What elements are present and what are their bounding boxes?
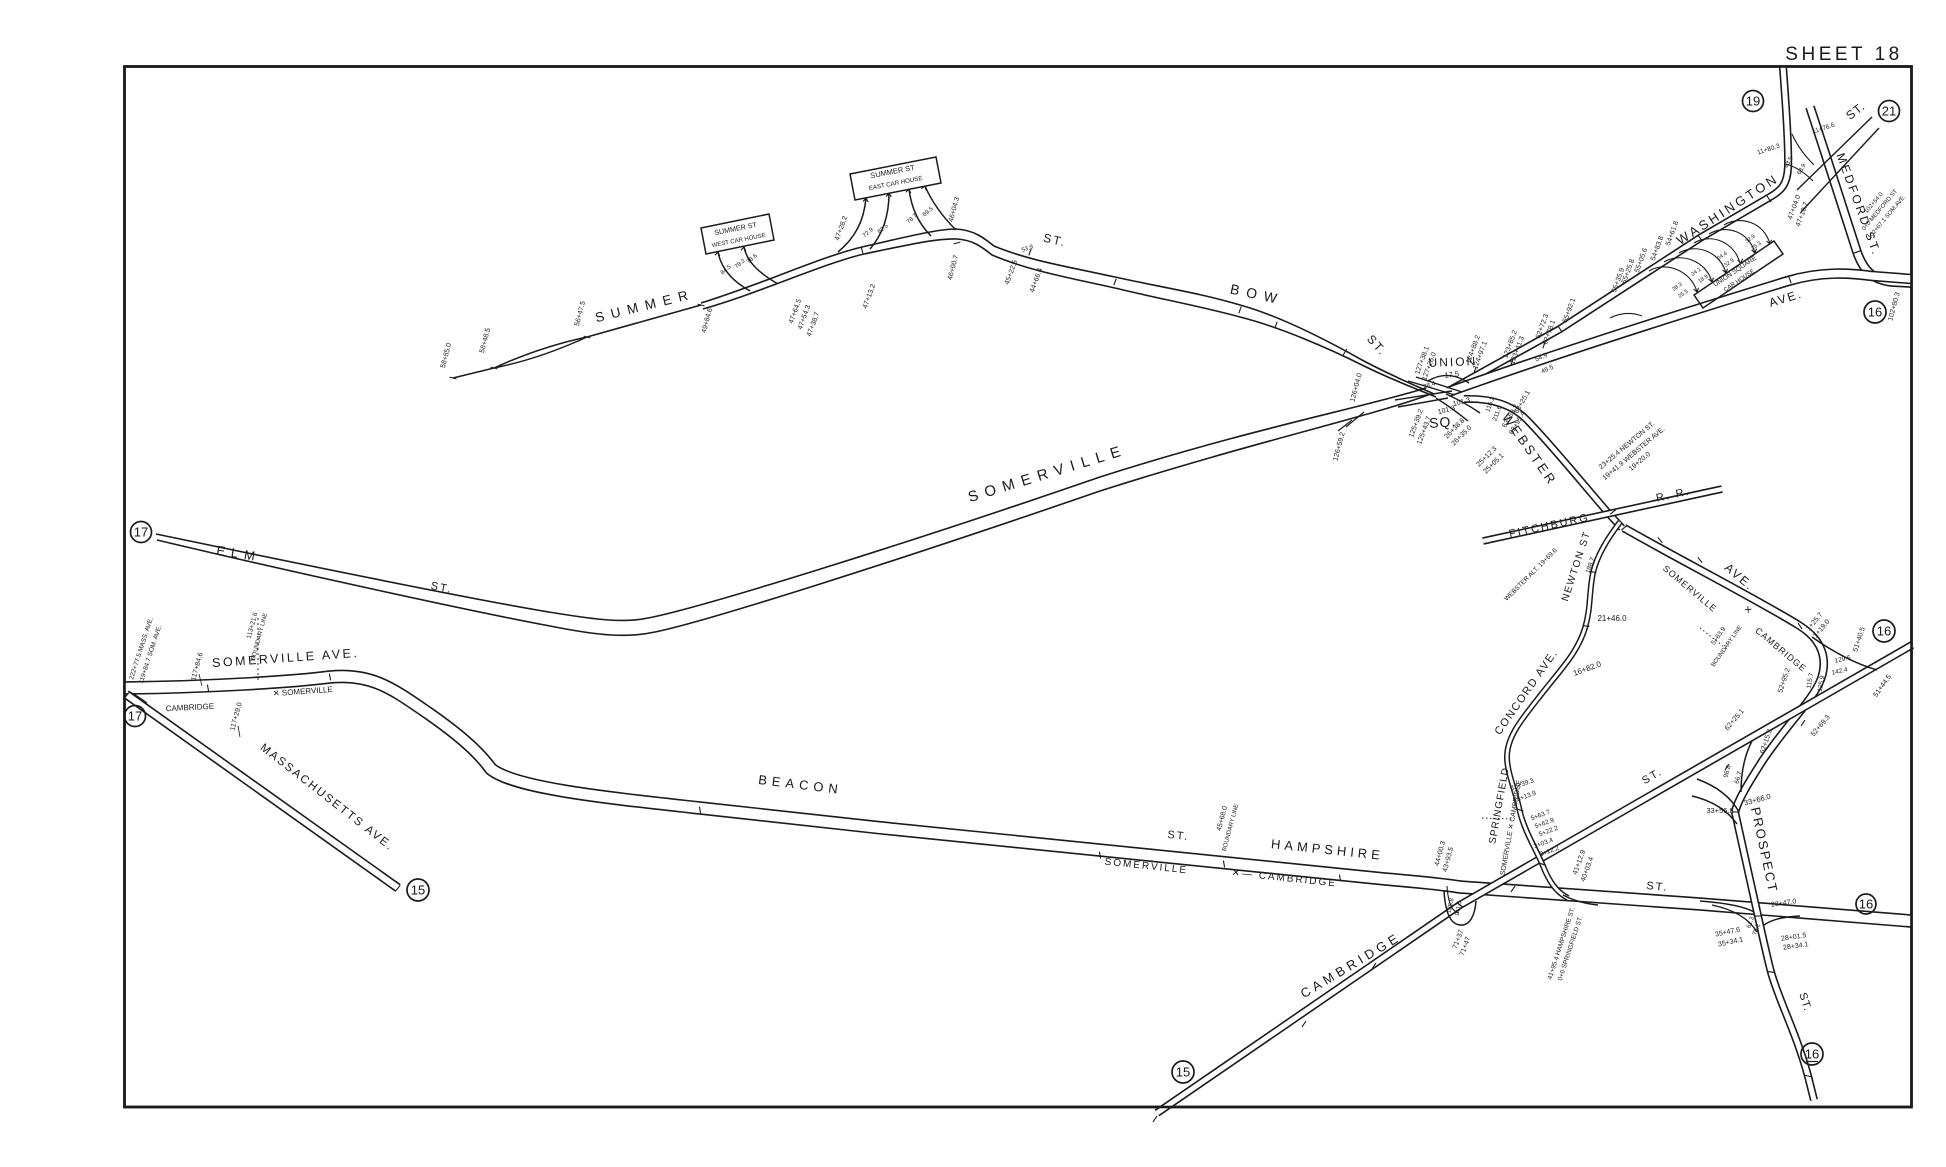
svg-text:21+46.0: 21+46.0 [1597,614,1627,623]
svg-text:17.5: 17.5 [1444,369,1459,379]
svg-text:21: 21 [1882,104,1896,119]
svg-text:15: 15 [411,883,425,898]
svg-text:16: 16 [1859,897,1873,912]
svg-text:16: 16 [1868,305,1882,320]
svg-text:19: 19 [1746,94,1760,109]
svg-text:33+56.8: 33+56.8 [1706,806,1733,815]
svg-text:ST.: ST. [1646,880,1669,894]
svg-text:15: 15 [1176,1065,1190,1080]
svg-text:17: 17 [128,709,142,724]
svg-text:ST.: ST. [1167,829,1190,843]
svg-text:16: 16 [1805,1047,1819,1062]
svg-text:SHEET 18: SHEET 18 [1785,44,1902,65]
svg-text:17: 17 [134,525,148,540]
svg-text:16: 16 [1877,624,1891,639]
